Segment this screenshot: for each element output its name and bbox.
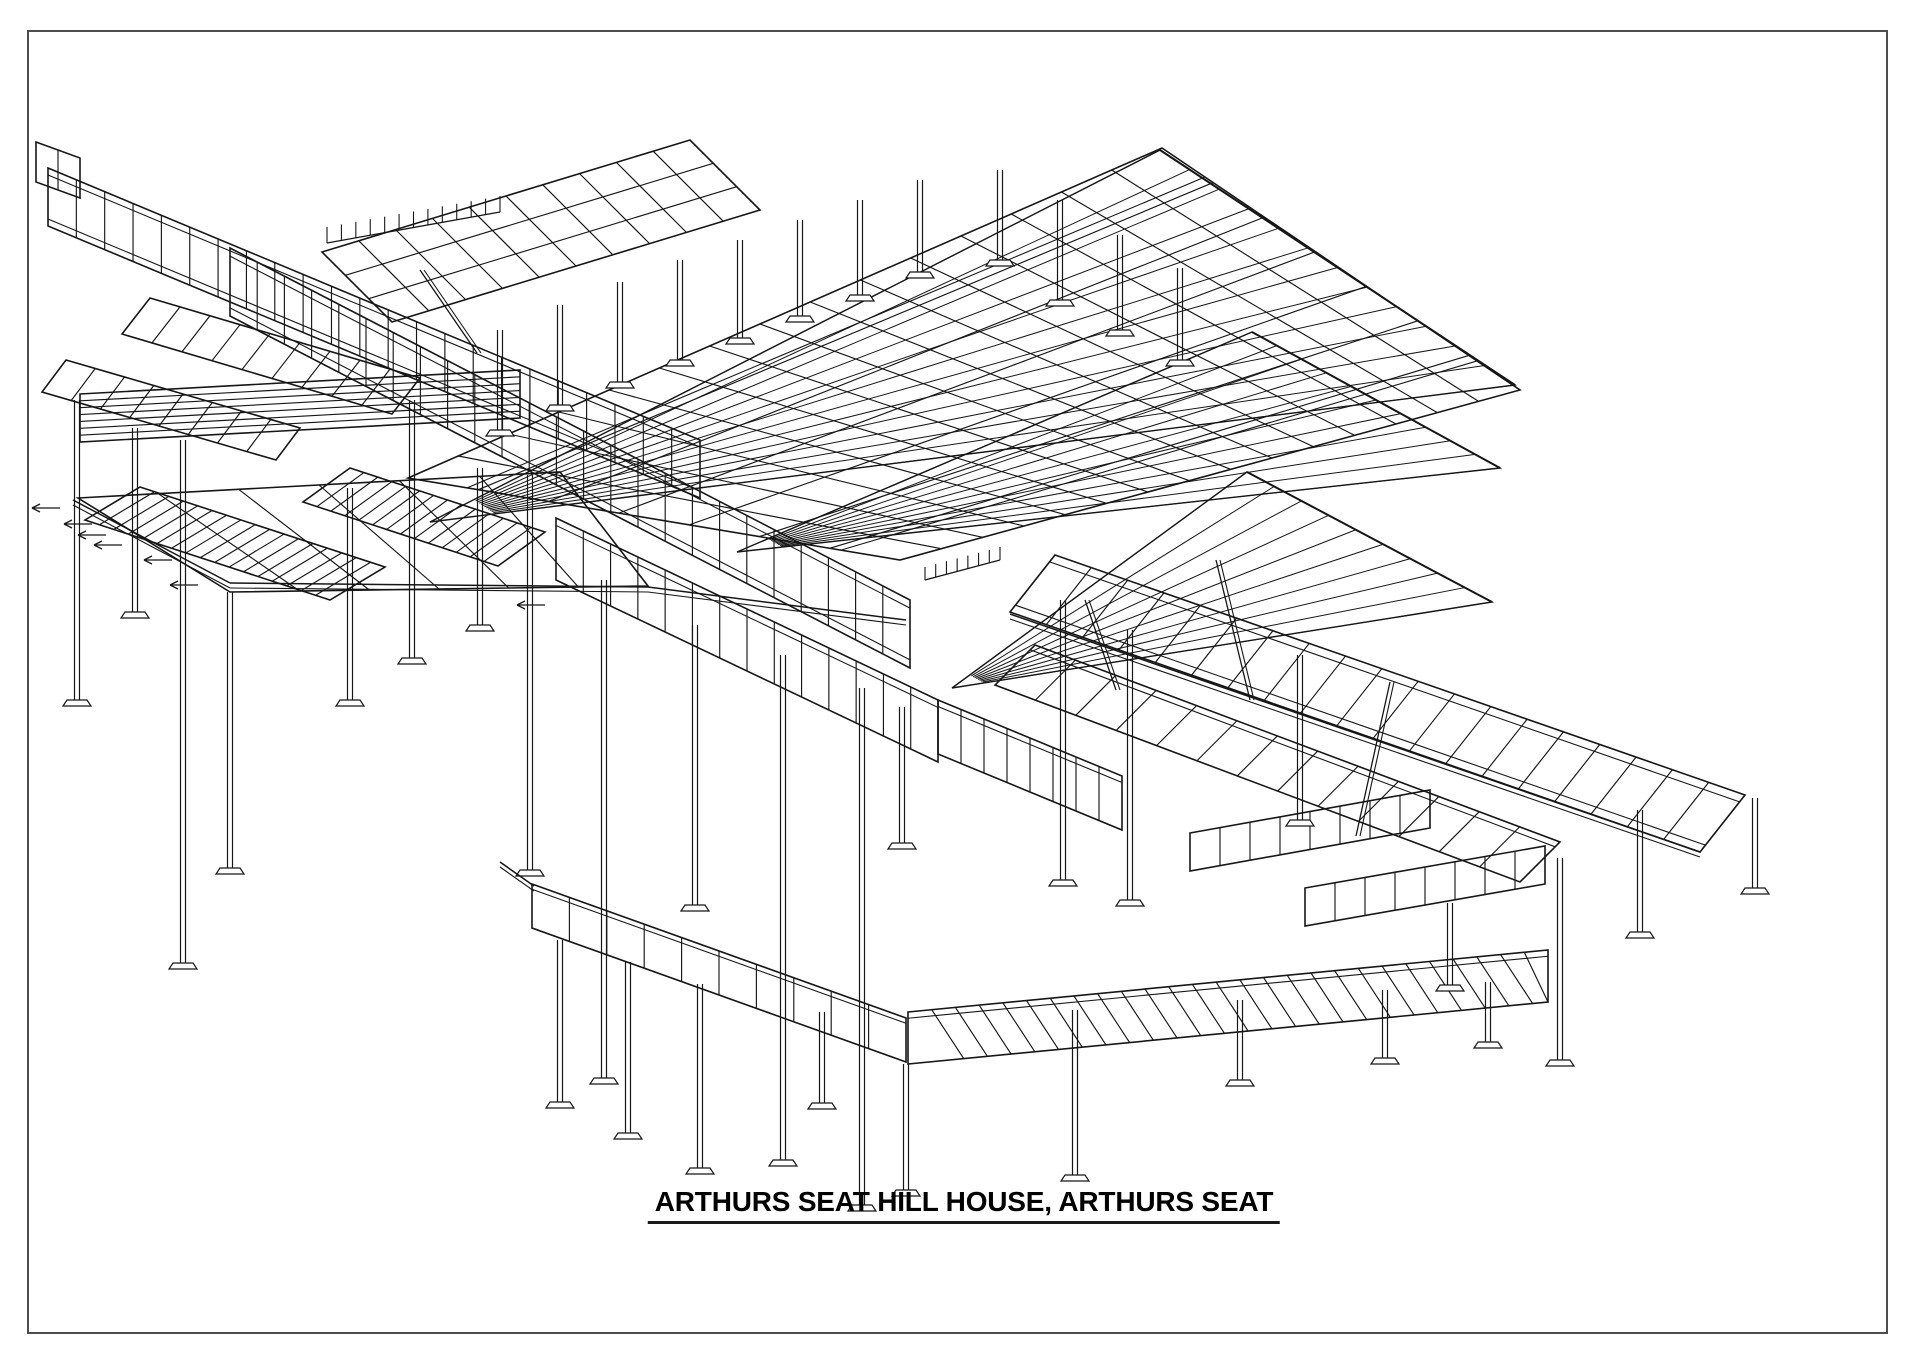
roof-sail-3 [952, 472, 1492, 688]
bottom-walkway [532, 884, 906, 1062]
bottom-strip-1 [1190, 790, 1430, 871]
spine-walkway-3 [938, 700, 1122, 830]
roof-grid-upper-left [322, 140, 760, 322]
drawing-title: ARTHURS SEAT HILL HOUSE, ARTHURS SEAT [648, 1186, 1280, 1224]
drawing-sheet: ARTHURS SEAT HILL HOUSE, ARTHURS SEAT [0, 0, 1920, 1361]
right-deck-lower [995, 645, 1560, 882]
braces [420, 270, 1394, 836]
columns [63, 170, 1769, 1211]
right-deck [1010, 555, 1745, 852]
bottom-strip-2 [1305, 846, 1545, 926]
roof-sail-2 [737, 332, 1500, 552]
cap-top-left [36, 142, 80, 198]
structural-wireframe-drawing [0, 0, 1920, 1361]
edge-beams [73, 500, 1700, 891]
left-platform [78, 472, 648, 592]
